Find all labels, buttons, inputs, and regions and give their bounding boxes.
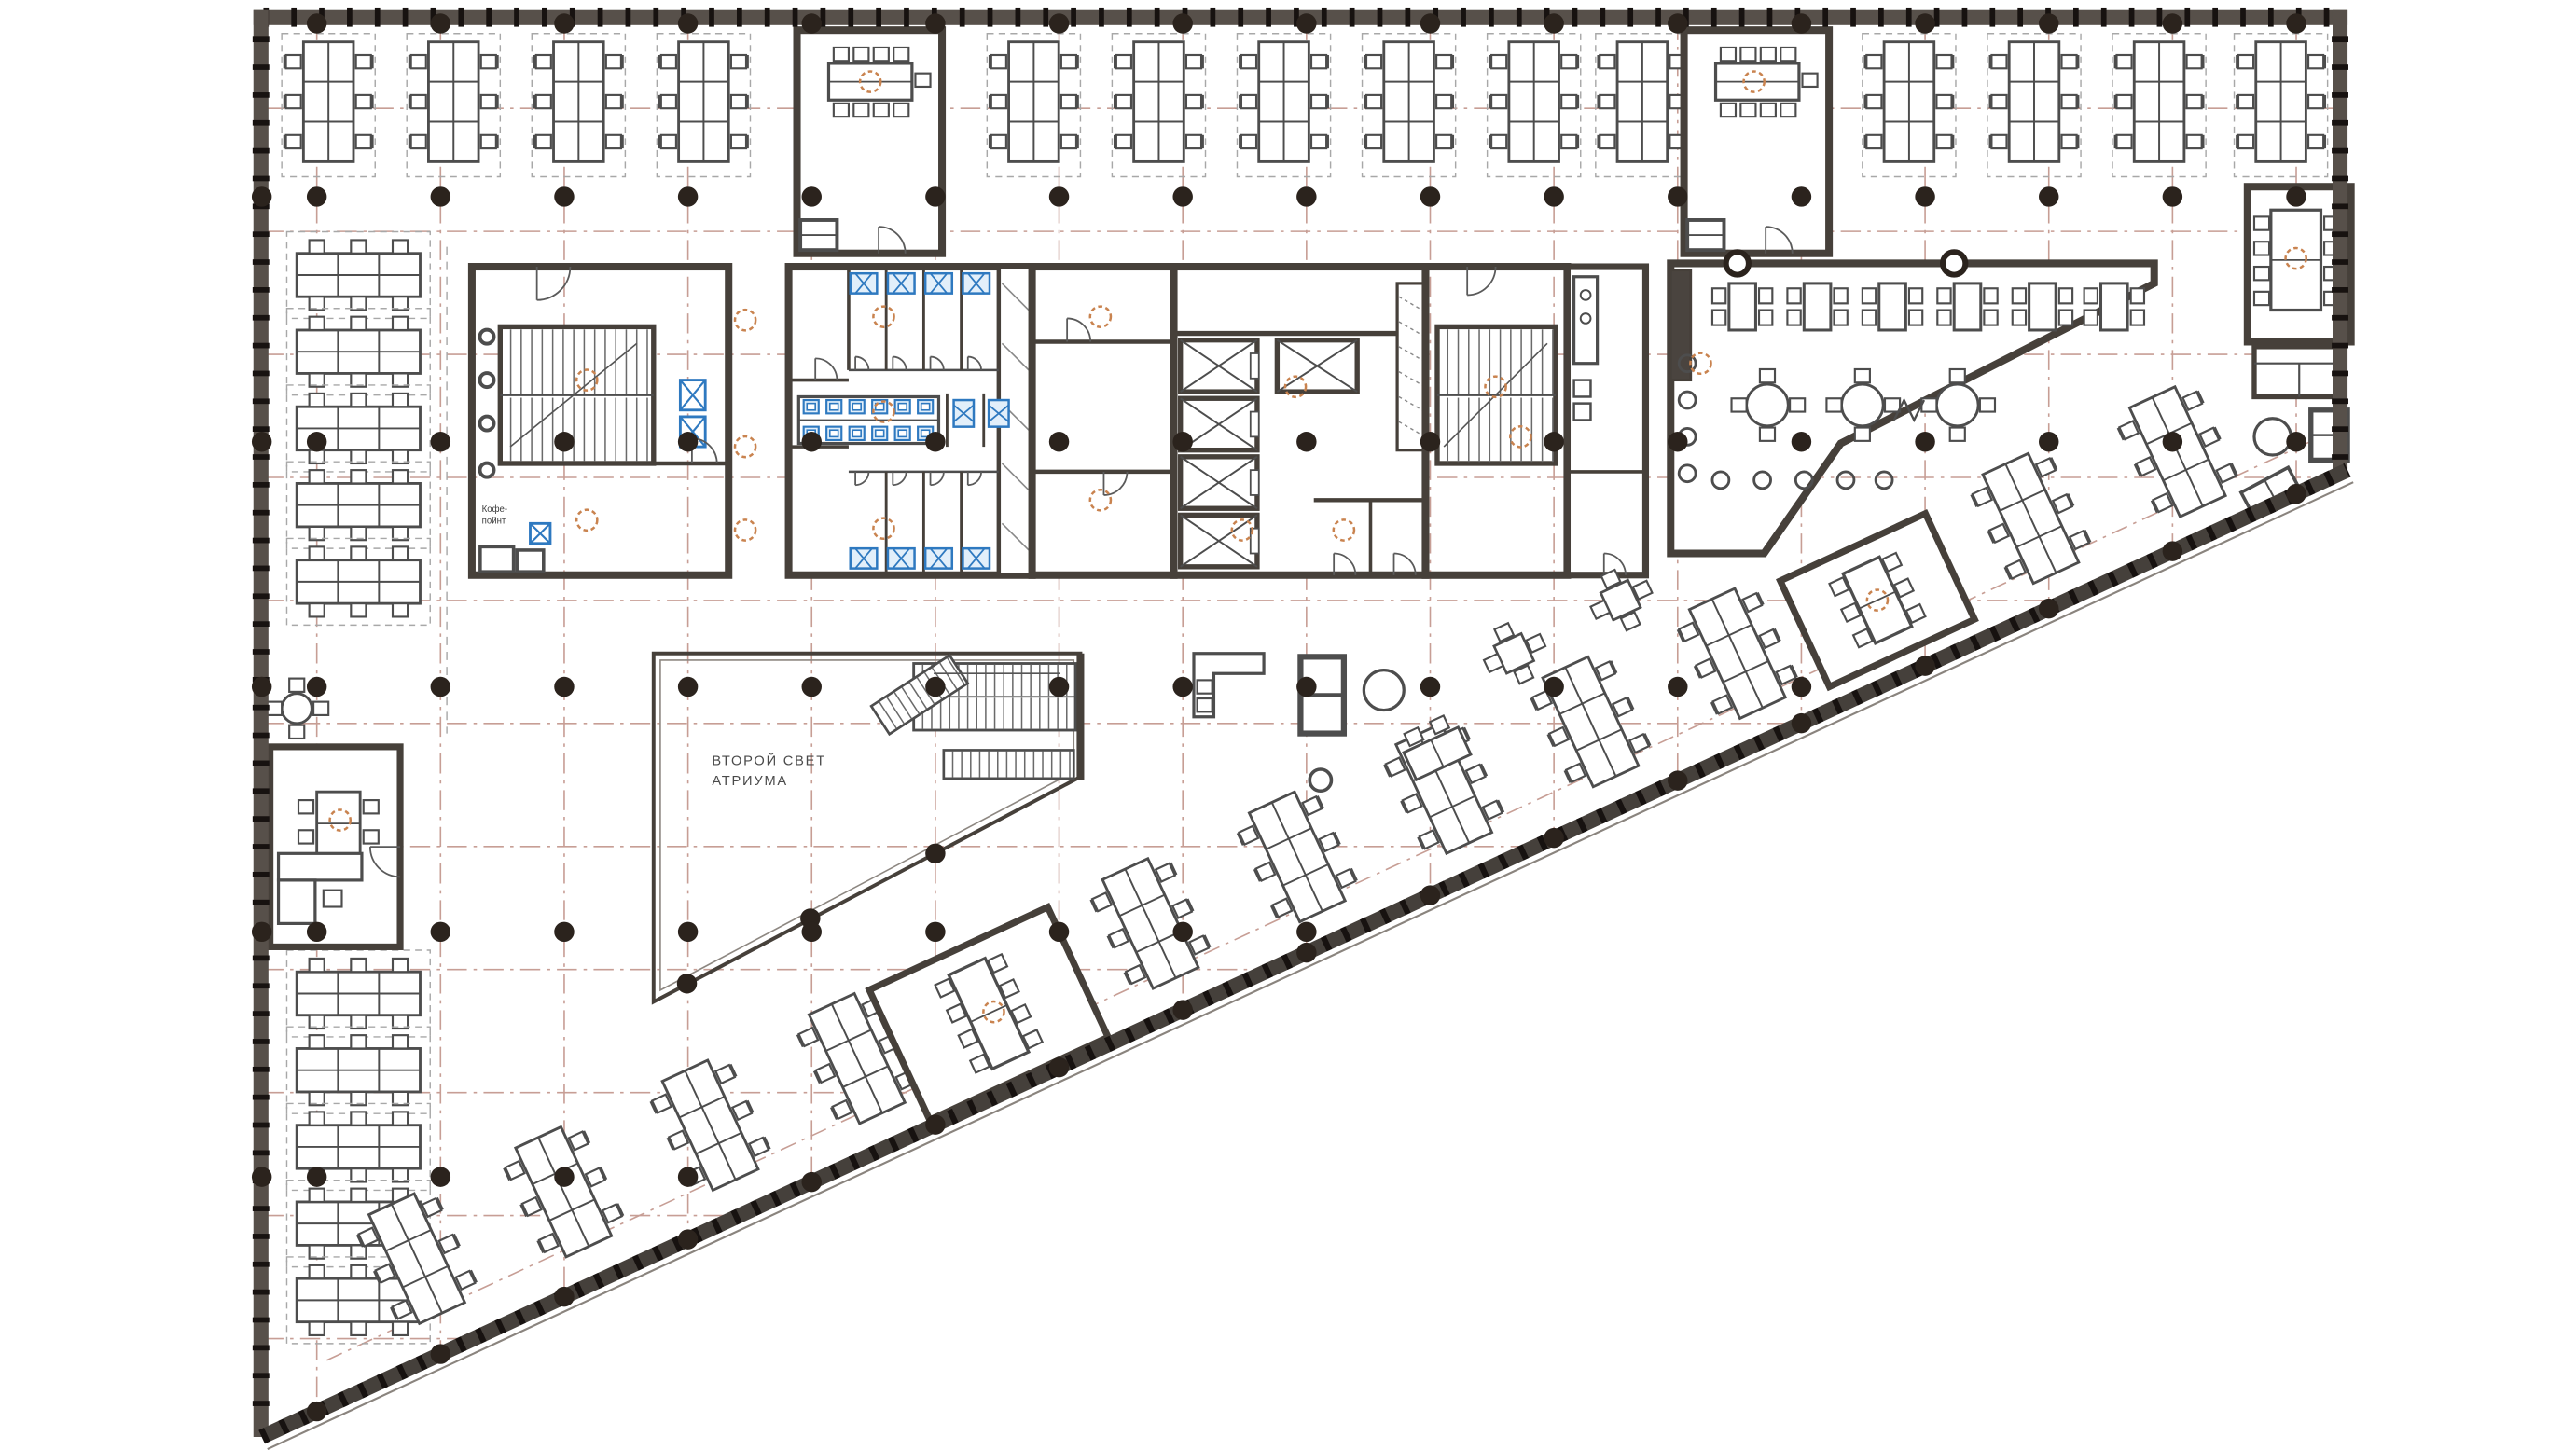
column-dot (2039, 13, 2058, 33)
column-dot (1296, 943, 1316, 962)
floor-plan-canvas: ВТОРОЙ СВЕТ АТРИУМА Кофе- пойнт (0, 0, 2576, 1450)
column-dot (1792, 186, 1811, 206)
column-dot (1420, 432, 1440, 451)
column-dot (554, 1287, 574, 1306)
column-dot (252, 186, 271, 206)
core-center (1032, 267, 1174, 575)
column-dot (802, 677, 822, 697)
column-dot (678, 1167, 698, 1186)
column-dot (2163, 432, 2182, 451)
column-dot (1049, 1057, 1069, 1077)
column-dot (252, 677, 271, 697)
column-dot (1792, 13, 1811, 33)
toilet-fixture (888, 273, 915, 293)
column-dot (431, 13, 450, 33)
column-dot (1915, 13, 1934, 33)
column-dot (252, 922, 271, 942)
column-dot (1172, 922, 1192, 942)
column-dot (925, 844, 945, 863)
column-dot (1544, 13, 1563, 33)
desk-bench (286, 1027, 430, 1113)
column-dot (307, 922, 326, 942)
column-dot (1792, 432, 1811, 451)
meeting-room-north (797, 30, 943, 254)
desk-bench (286, 231, 430, 318)
column-dot (1420, 13, 1440, 33)
column-dot (307, 1402, 326, 1421)
desk-bench (286, 309, 430, 395)
coffee-point-label-line1: Кофе- (482, 504, 507, 515)
toilet-fixture (925, 273, 952, 293)
column-dot (1172, 677, 1192, 697)
column-dot (925, 1114, 945, 1134)
column-dot (2286, 186, 2306, 206)
column-dot (431, 186, 450, 206)
column-dot (1049, 432, 1069, 451)
column-dot (554, 677, 574, 697)
column-dot (1296, 677, 1316, 697)
column-dot (677, 974, 697, 993)
column-dot (1172, 186, 1192, 206)
column-dot (2163, 13, 2182, 33)
column-dot (1296, 432, 1316, 451)
column-dot (802, 922, 822, 942)
column-dot (554, 922, 574, 942)
column-dot (1792, 677, 1811, 697)
column-dot (1544, 677, 1563, 697)
desk-bench (286, 385, 430, 472)
column-dot (802, 1172, 822, 1192)
column-dot (1420, 677, 1440, 697)
column-dot (1915, 432, 1934, 451)
office-room (270, 747, 400, 947)
column-dot (431, 922, 450, 942)
column-dot (1172, 13, 1192, 33)
toilet-fixture (963, 548, 990, 568)
atrium-label-line2: АТРИУМА (712, 774, 788, 789)
column-dot (925, 922, 945, 942)
column-dot (678, 432, 698, 451)
ring-column (1726, 252, 1749, 274)
column-dot (431, 1167, 450, 1186)
column-dot (307, 13, 326, 33)
toilet-fixture (989, 400, 1008, 427)
column-dot (554, 13, 574, 33)
column-dot (2286, 484, 2306, 504)
column-dot (1544, 432, 1563, 451)
column-dot (2039, 599, 2058, 618)
column-dot (252, 1167, 271, 1186)
column-dot (1668, 432, 1687, 451)
atrium-label-line1: ВТОРОЙ СВЕТ (712, 753, 826, 769)
desk-bench (286, 538, 430, 625)
column-dot (554, 1167, 574, 1186)
column-dot (431, 1344, 450, 1363)
column-dot (431, 677, 450, 697)
column-dot (802, 186, 822, 206)
column-dot (307, 432, 326, 451)
column-dot (1915, 656, 1934, 675)
column-dot (678, 13, 698, 33)
column-dot (307, 1167, 326, 1186)
column-dot (925, 432, 945, 451)
column-dot (1420, 885, 1440, 905)
toilet-fixture (963, 273, 990, 293)
ring-column (1943, 252, 1965, 274)
column-dot (1296, 13, 1316, 33)
column-dot (2039, 186, 2058, 206)
column-dot (1420, 186, 1440, 206)
toilet-fixture (888, 548, 915, 568)
column-dot (1049, 677, 1069, 697)
column-dot (554, 186, 574, 206)
column-dot (2039, 432, 2058, 451)
column-dot (307, 677, 326, 697)
column-dot (1296, 922, 1316, 942)
column-dot (2163, 541, 2182, 560)
column-dot (1668, 677, 1687, 697)
toilet-fixture (851, 548, 878, 568)
column-dot (1049, 922, 1069, 942)
meeting-room-north (1684, 30, 1830, 254)
service-strip (1567, 267, 1645, 575)
column-dot (1668, 13, 1687, 33)
column-dot (678, 1229, 698, 1249)
column-dot (431, 432, 450, 451)
column-dot (2163, 186, 2182, 206)
column-dot (1049, 13, 1069, 33)
column-dot (1544, 186, 1563, 206)
column-dot (678, 922, 698, 942)
column-dot (1296, 186, 1316, 206)
column-dot (1668, 770, 1687, 790)
column-dot (2286, 13, 2306, 33)
column-dot (678, 186, 698, 206)
column-dot (802, 432, 822, 451)
column-dot (1172, 432, 1192, 451)
elevator-core (1174, 267, 1426, 575)
column-dot (554, 432, 574, 451)
column-dot (925, 677, 945, 697)
wc-block (789, 267, 1032, 575)
toilet-fixture (925, 548, 952, 568)
column-dot (307, 186, 326, 206)
column-dot (1544, 828, 1563, 848)
coffee-point-label-line2: пойнт (482, 516, 506, 526)
column-dot (1915, 186, 1934, 206)
desk-bench (286, 950, 430, 1037)
column-dot (252, 432, 271, 451)
toilet-fixture (954, 400, 974, 427)
column-dot (925, 186, 945, 206)
column-dot (925, 13, 945, 33)
toilet-fixture (851, 273, 878, 293)
desk-bench (286, 462, 430, 548)
column-dot (1049, 186, 1069, 206)
column-dot (802, 13, 822, 33)
column-dot (1668, 186, 1687, 206)
floor-plan-page: ВТОРОЙ СВЕТ АТРИУМА Кофе- пойнт (0, 0, 2576, 1450)
column-dot (678, 677, 698, 697)
column-dot (2286, 432, 2306, 451)
column-dot (1172, 1000, 1192, 1019)
column-dot (1792, 713, 1811, 733)
